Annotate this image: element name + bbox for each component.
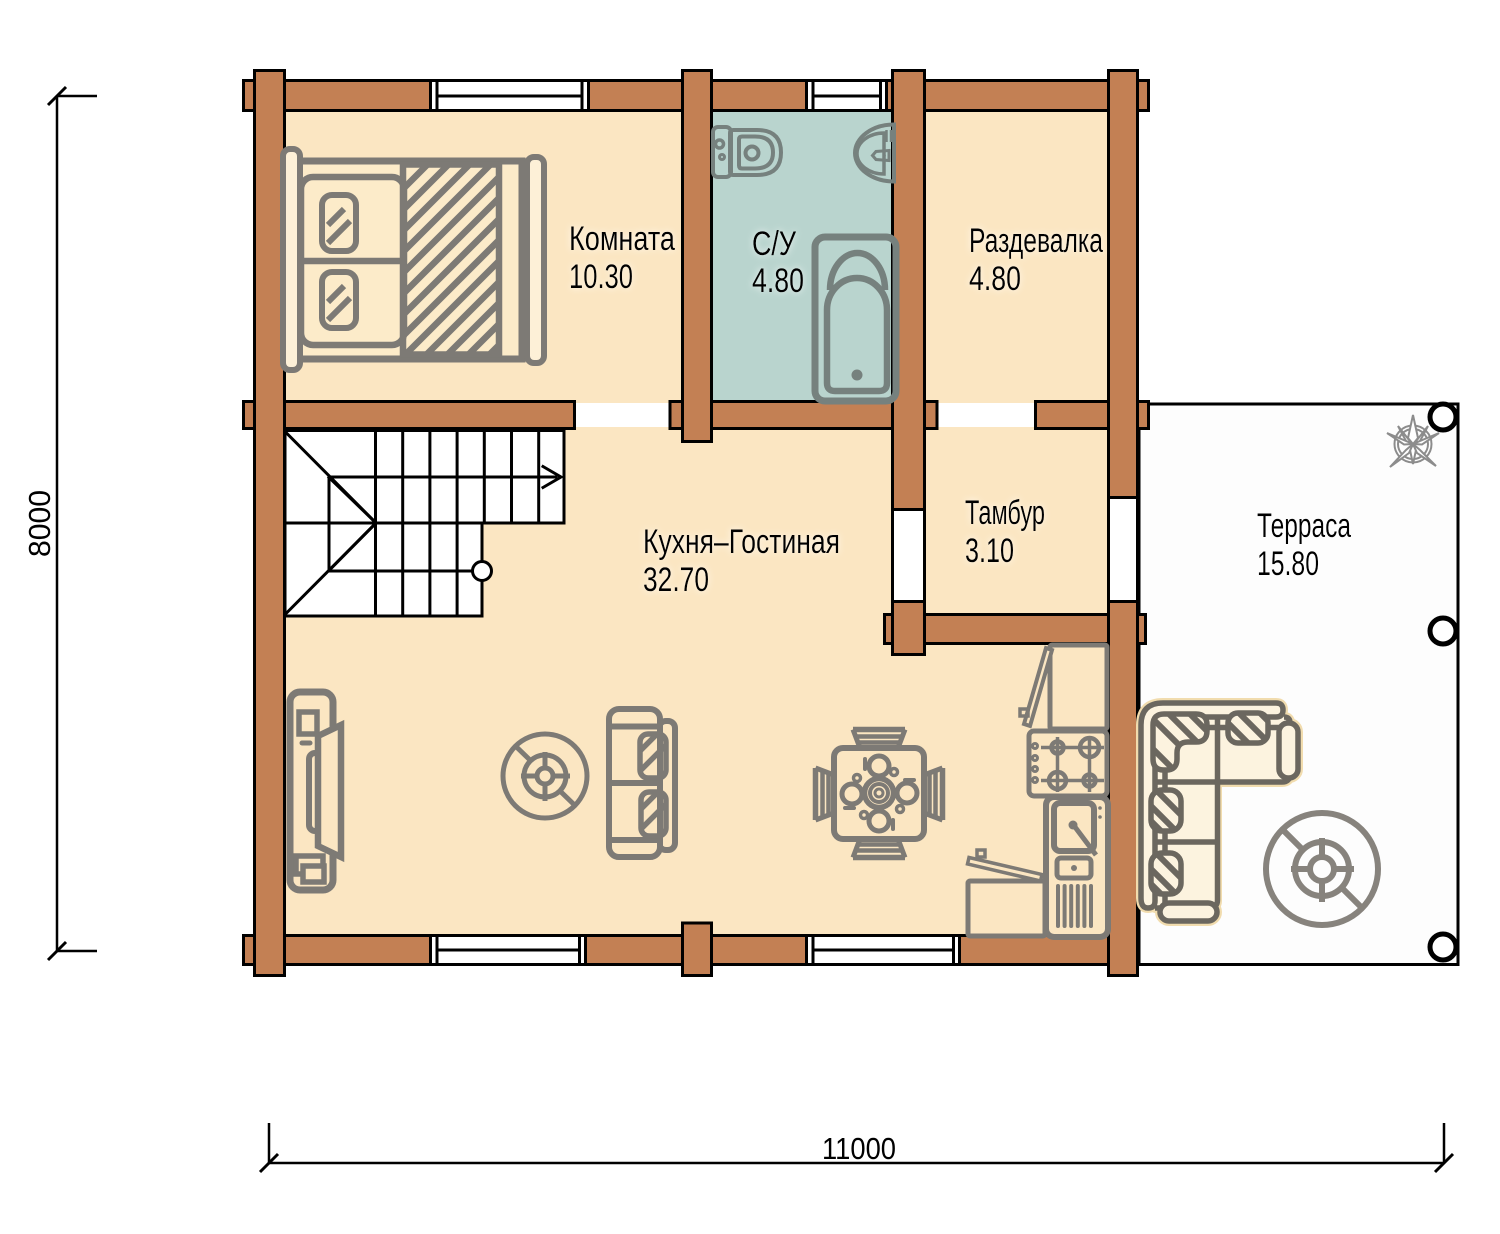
svg-text:Комната: Комната [569,220,675,258]
svg-text:10.30: 10.30 [569,258,633,296]
svg-text:11000: 11000 [822,1131,896,1166]
svg-text:3.10: 3.10 [965,532,1014,570]
svg-text:15.80: 15.80 [1257,545,1319,583]
svg-text:Терраса: Терраса [1257,507,1351,545]
svg-text:32.70: 32.70 [643,561,709,599]
svg-text:Кухня–Гостиная: Кухня–Гостиная [643,523,840,561]
svg-text:Тамбур: Тамбур [965,494,1045,532]
svg-text:8000: 8000 [22,490,57,557]
svg-text:Раздевалка: Раздевалка [969,222,1103,260]
svg-text:4.80: 4.80 [752,262,804,300]
svg-text:С/У: С/У [752,225,796,263]
svg-text:4.80: 4.80 [969,260,1021,298]
